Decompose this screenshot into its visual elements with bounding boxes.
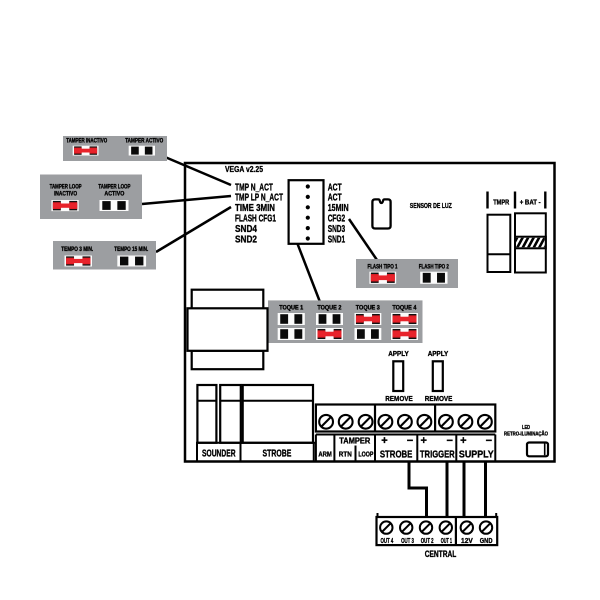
svg-text:SOUNDER: SOUNDER	[202, 448, 236, 459]
svg-text:OUT 4: OUT 4	[381, 538, 394, 545]
svg-text:VEGA v2.25: VEGA v2.25	[225, 164, 263, 174]
svg-text:APPLY: APPLY	[388, 349, 409, 358]
svg-text:TOQUE 3: TOQUE 3	[356, 305, 381, 311]
svg-text:+: +	[460, 435, 466, 447]
svg-text:RTN: RTN	[339, 451, 352, 458]
svg-text:STROBE: STROBE	[380, 448, 413, 460]
svg-text:INACTIVO: INACTIVO	[54, 192, 77, 198]
svg-text:APPLY: APPLY	[428, 349, 449, 358]
svg-text:OUT 3: OUT 3	[401, 538, 414, 545]
svg-text:OUT 1: OUT 1	[441, 538, 452, 545]
svg-text:TOQUE 2: TOQUE 2	[317, 305, 342, 311]
svg-text:TAMPER LOOP: TAMPER LOOP	[98, 184, 130, 190]
svg-text:OUT 2: OUT 2	[421, 538, 434, 545]
svg-text:LOOP: LOOP	[358, 451, 373, 458]
svg-text:LED: LED	[522, 425, 530, 431]
svg-text:SENSOR DE LUZ: SENSOR DE LUZ	[410, 203, 453, 210]
svg-text:ACTIVO: ACTIVO	[104, 192, 124, 198]
svg-text:SND2: SND2	[235, 233, 257, 245]
svg-text:REMOVE: REMOVE	[425, 394, 453, 403]
svg-text:TAMPER LOOP: TAMPER LOOP	[50, 184, 82, 190]
svg-text:TOQUE 1: TOQUE 1	[279, 305, 304, 311]
svg-text:−: −	[407, 435, 413, 447]
svg-text:+: +	[381, 435, 387, 447]
svg-text:TEMPO 3 MIN.: TEMPO 3 MIN.	[61, 247, 93, 253]
svg-text:REMOVE: REMOVE	[385, 394, 413, 403]
svg-text:+: +	[420, 435, 426, 447]
svg-text:FLASH TIPO 1: FLASH TIPO 1	[368, 264, 398, 270]
svg-text:TEMPO 15 MIN.: TEMPO 15 MIN.	[114, 247, 148, 253]
svg-text:ARM: ARM	[318, 451, 332, 458]
svg-text:SND1: SND1	[328, 233, 346, 245]
svg-text:CENTRAL: CENTRAL	[425, 549, 457, 560]
svg-text:RETRO-ILUMINAÇÃO: RETRO-ILUMINAÇÃO	[504, 430, 549, 437]
svg-text:SUPPLY: SUPPLY	[459, 448, 494, 460]
svg-text:TMPR: TMPR	[493, 199, 509, 206]
svg-text:TRIGGER: TRIGGER	[420, 448, 455, 460]
svg-text:GND: GND	[480, 538, 493, 545]
svg-text:TAMPER ACTIVO: TAMPER ACTIVO	[125, 139, 163, 145]
svg-text:−: −	[486, 435, 492, 447]
svg-text:STROBE: STROBE	[263, 448, 292, 459]
svg-text:+ BAT -: + BAT -	[520, 199, 542, 206]
svg-text:−: −	[446, 435, 452, 447]
svg-text:FLASH TIPO 2: FLASH TIPO 2	[419, 264, 449, 270]
svg-text:12V: 12V	[461, 538, 473, 545]
svg-text:TAMPER: TAMPER	[339, 436, 370, 446]
svg-text:TAMPER INACTIVO: TAMPER INACTIVO	[66, 139, 107, 145]
svg-text:TOQUE 4: TOQUE 4	[392, 305, 417, 311]
